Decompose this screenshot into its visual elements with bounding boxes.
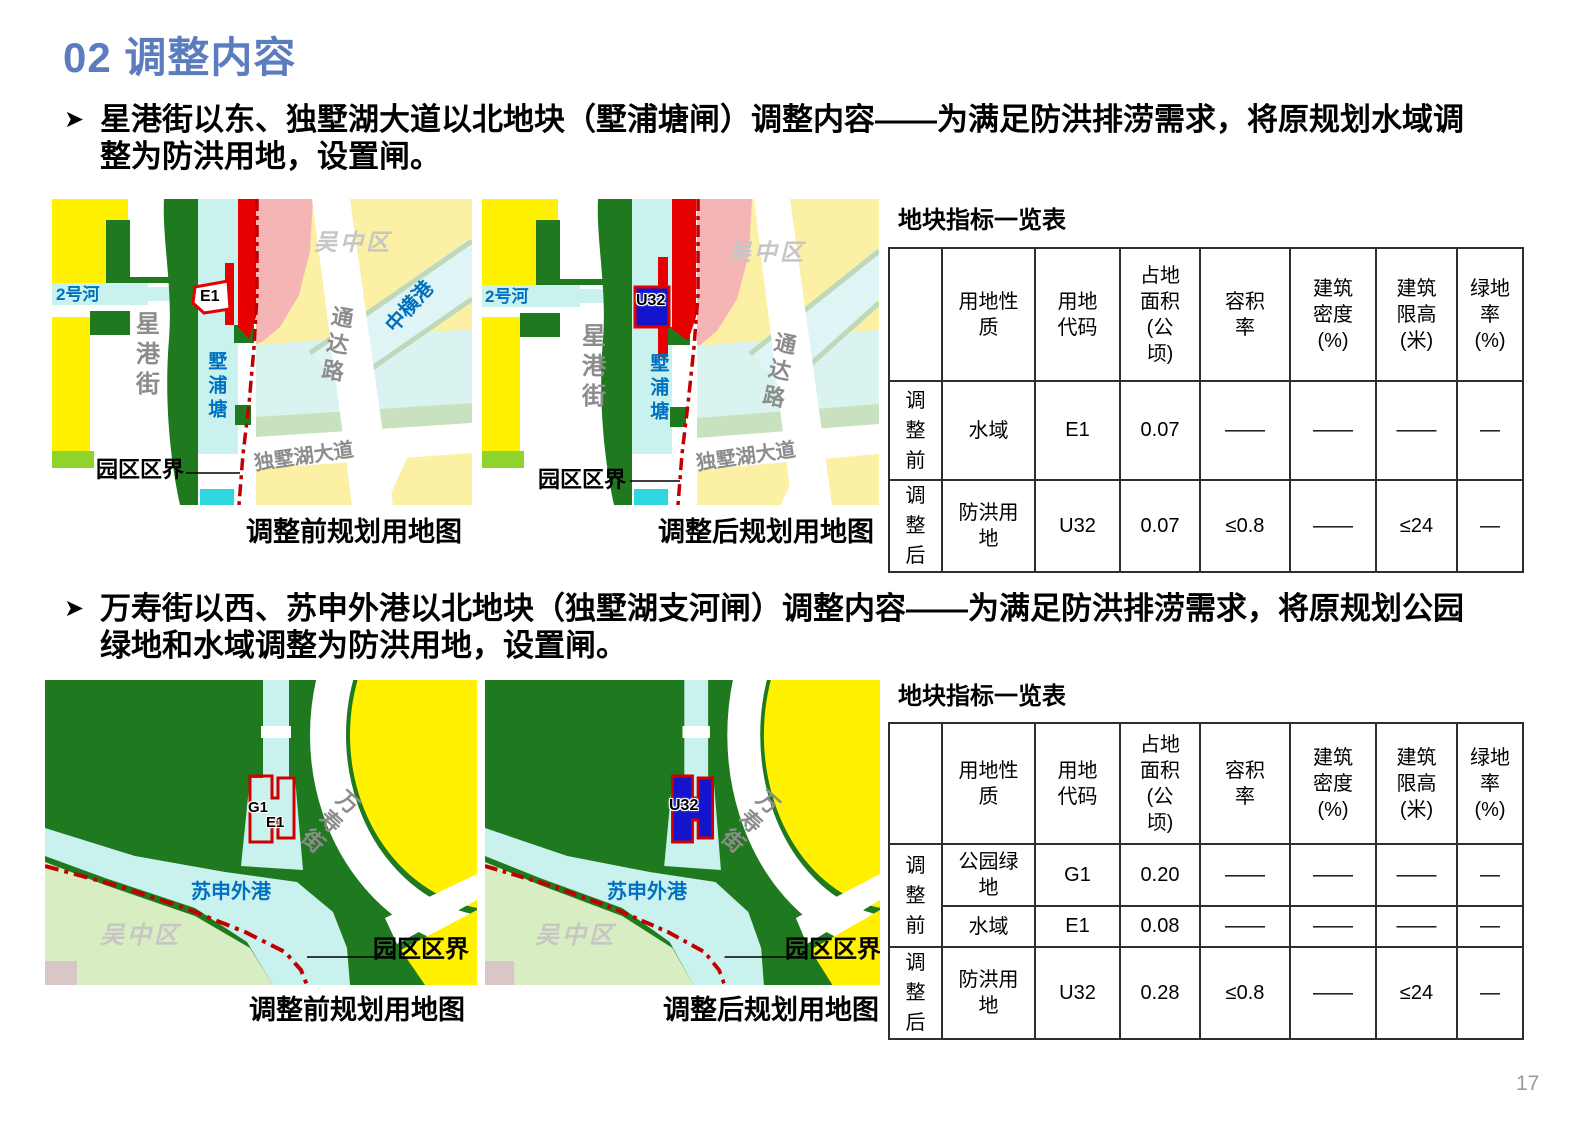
- district-label: 吴中区: [535, 924, 616, 948]
- map-caption: 调整后规划用地图: [482, 510, 874, 549]
- bullet-1-text: 星港街以东、独墅湖大道以北地块（墅浦塘闸）调整内容——为满足防洪排涝需求，将原规…: [100, 101, 1490, 175]
- street-label: 星港街: [132, 311, 156, 401]
- col-header: 用地代码: [1035, 248, 1120, 381]
- map-after-1: 2号河 星港街 U32 墅浦塘 吴中区 通达路 独墅湖大道 园区区界: [482, 199, 879, 505]
- cell-stage: 调整前: [889, 844, 942, 947]
- cell-area: 0.07: [1120, 480, 1200, 572]
- bullet-arrow-icon: ➤: [64, 101, 100, 138]
- map-svg: [482, 199, 879, 505]
- cell-green: —: [1457, 906, 1523, 947]
- map-caption: 调整后规划用地图: [485, 988, 879, 1027]
- river-main-label: 墅浦塘: [206, 351, 225, 423]
- cell-far: ≤0.8: [1200, 480, 1290, 572]
- parcel-label-g1: G1: [248, 800, 268, 815]
- cell-green: —: [1457, 844, 1523, 906]
- table-row: 调整前 水域 E1 0.07 —— —— —— —: [889, 381, 1523, 480]
- cell-green: —: [1457, 947, 1523, 1039]
- page-number: 17: [1516, 1072, 1539, 1096]
- col-header: 用地性质: [942, 248, 1035, 381]
- col-header: 容积率: [1200, 723, 1290, 844]
- parcel-label: E1: [200, 289, 220, 305]
- bullet-2: ➤ 万寿街以西、苏申外港以北地块（独墅湖支河闸）调整内容——为满足防洪排涝需求，…: [64, 590, 1490, 664]
- cell-code: E1: [1035, 381, 1120, 480]
- col-header: 绿地率(%): [1457, 723, 1523, 844]
- cell-use: 防洪用地: [942, 480, 1035, 572]
- cell-code: U32: [1035, 947, 1120, 1039]
- cell-use: 公园绿地: [942, 844, 1035, 906]
- map-caption: 调整前规划用地图: [45, 988, 465, 1027]
- cell-green: —: [1457, 381, 1523, 480]
- cell-code: G1: [1035, 844, 1120, 906]
- cell-green: —: [1457, 480, 1523, 572]
- table-row: 调整后 防洪用地 U32 0.07 ≤0.8 —— ≤24 —: [889, 480, 1523, 572]
- cell-stage: 调整后: [889, 947, 942, 1039]
- cell-area: 0.28: [1120, 947, 1200, 1039]
- cell-height: ≤24: [1376, 947, 1457, 1039]
- street-label: 星港街: [578, 323, 602, 413]
- river-label: 苏申外港: [191, 882, 271, 902]
- table-row: 水域 E1 0.08 —— —— —— —: [889, 906, 1523, 947]
- slide-title: 02 调整内容: [63, 24, 296, 85]
- col-header: [889, 248, 942, 381]
- cell-code: U32: [1035, 480, 1120, 572]
- map-before-2: G1 E1 苏申外港 万寿街 吴中区 园区区界: [45, 680, 477, 985]
- spec-table-1: 用地性质 用地代码 占地面积(公顷) 容积率 建筑密度(%) 建筑限高(米) 绿…: [888, 247, 1524, 573]
- cell-far: ——: [1200, 381, 1290, 480]
- col-header: 容积率: [1200, 248, 1290, 381]
- cell-density: ——: [1290, 947, 1376, 1039]
- spec-table-2: 用地性质 用地代码 占地面积(公顷) 容积率 建筑密度(%) 建筑限高(米) 绿…: [888, 722, 1524, 1040]
- col-header: 占地面积(公顷): [1120, 248, 1200, 381]
- cell-use: 水域: [942, 381, 1035, 480]
- col-header: 用地代码: [1035, 723, 1120, 844]
- cell-area: 0.08: [1120, 906, 1200, 947]
- cell-area: 0.07: [1120, 381, 1200, 480]
- parcel-label-u32: U32: [669, 798, 698, 814]
- boundary-label: 园区区界: [538, 469, 626, 491]
- land-use-shapes: [482, 199, 879, 505]
- table-header-row: 用地性质 用地代码 占地面积(公顷) 容积率 建筑密度(%) 建筑限高(米) 绿…: [889, 248, 1523, 381]
- cell-use: 防洪用地: [942, 947, 1035, 1039]
- table-row: 调整前 公园绿地 G1 0.20 —— —— —— —: [889, 844, 1523, 906]
- cell-height: ——: [1376, 906, 1457, 947]
- cell-height: ——: [1376, 381, 1457, 480]
- col-header: 建筑限高(米): [1376, 723, 1457, 844]
- cell-density: ——: [1290, 480, 1376, 572]
- col-header: 绿地率(%): [1457, 248, 1523, 381]
- river-label: 2号河: [56, 286, 99, 303]
- cell-far: ≤0.8: [1200, 947, 1290, 1039]
- col-header: 占地面积(公顷): [1120, 723, 1200, 844]
- boundary-label: 园区区界: [785, 938, 880, 962]
- cell-density: ——: [1290, 381, 1376, 480]
- cell-height: ≤24: [1376, 480, 1457, 572]
- sluice-bar: [658, 257, 668, 289]
- map-after-2: U32 苏申外港 万寿街 吴中区 园区区界: [485, 680, 880, 985]
- district-label: 吴中区: [314, 231, 392, 254]
- cell-use: 水域: [942, 906, 1035, 947]
- bullet-1: ➤ 星港街以东、独墅湖大道以北地块（墅浦塘闸）调整内容——为满足防洪排涝需求，将…: [64, 101, 1490, 175]
- cell-far: ——: [1200, 906, 1290, 947]
- cell-area: 0.20: [1120, 844, 1200, 906]
- col-header: 用地性质: [942, 723, 1035, 844]
- parcel-label-e1: E1: [266, 815, 284, 830]
- col-header: 建筑限高(米): [1376, 248, 1457, 381]
- cell-far: ——: [1200, 844, 1290, 906]
- river-main-label: 墅浦塘: [648, 353, 667, 425]
- boundary-label: 园区区界: [373, 938, 469, 962]
- col-header: 建筑密度(%): [1290, 723, 1376, 844]
- map-caption: 调整前规划用地图: [52, 510, 462, 549]
- cell-density: ——: [1290, 906, 1376, 947]
- bullet-arrow-icon: ➤: [64, 590, 100, 627]
- district-label: 吴中区: [100, 924, 181, 948]
- river-label: 苏申外港: [607, 882, 687, 902]
- cell-density: ——: [1290, 844, 1376, 906]
- river-label: 2号河: [485, 288, 528, 305]
- table-row: 调整后 防洪用地 U32 0.28 ≤0.8 —— ≤24 —: [889, 947, 1523, 1039]
- bullet-2-text: 万寿街以西、苏申外港以北地块（独墅湖支河闸）调整内容——为满足防洪排涝需求，将原…: [100, 590, 1490, 664]
- table-header-row: 用地性质 用地代码 占地面积(公顷) 容积率 建筑密度(%) 建筑限高(米) 绿…: [889, 723, 1523, 844]
- table-title-2: 地块指标一览表: [898, 676, 1066, 711]
- cell-code: E1: [1035, 906, 1120, 947]
- boundary-label: 园区区界: [96, 459, 184, 481]
- col-header: [889, 723, 942, 844]
- district-label: 吴中区: [728, 241, 806, 264]
- map-before-1: 2号河 星港街 E1 墅浦塘 吴中区 中横港 通达路 独墅湖大道 园区区界: [52, 199, 472, 505]
- cell-stage: 调整前: [889, 381, 942, 480]
- col-header: 建筑密度(%): [1290, 248, 1376, 381]
- cell-height: ——: [1376, 844, 1457, 906]
- table-title-1: 地块指标一览表: [898, 200, 1066, 235]
- cell-stage: 调整后: [889, 480, 942, 572]
- parcel-label: U32: [636, 293, 665, 309]
